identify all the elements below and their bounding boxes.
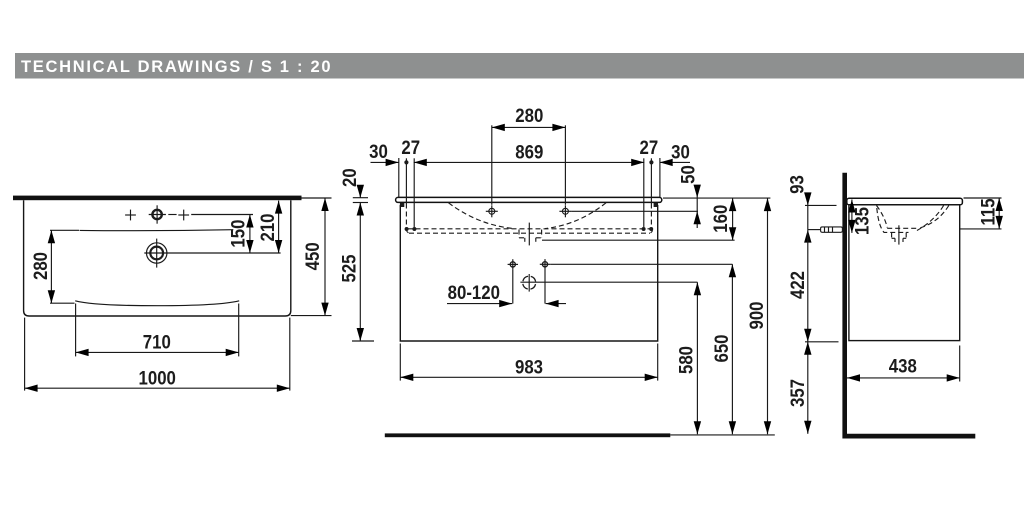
- svg-text:50: 50: [678, 165, 699, 184]
- svg-text:80-120: 80-120: [448, 282, 500, 303]
- svg-text:27: 27: [401, 137, 420, 158]
- svg-text:280: 280: [30, 252, 51, 280]
- svg-text:900: 900: [746, 301, 767, 329]
- svg-text:710: 710: [143, 332, 171, 353]
- svg-text:580: 580: [675, 346, 696, 374]
- svg-text:115: 115: [978, 198, 999, 225]
- svg-text:93: 93: [786, 175, 807, 194]
- svg-text:650: 650: [711, 334, 732, 362]
- svg-text:438: 438: [889, 355, 917, 376]
- svg-text:160: 160: [710, 205, 731, 233]
- svg-text:27: 27: [640, 137, 659, 158]
- svg-text:210: 210: [257, 213, 278, 241]
- svg-text:357: 357: [787, 379, 808, 407]
- svg-text:150: 150: [228, 220, 249, 248]
- svg-text:422: 422: [787, 271, 808, 299]
- svg-text:450: 450: [302, 242, 323, 270]
- svg-text:280: 280: [515, 105, 543, 126]
- svg-text:983: 983: [515, 357, 543, 378]
- svg-text:1000: 1000: [138, 367, 175, 388]
- svg-text:TECHNICAL DRAWINGS / S 1 : 20: TECHNICAL DRAWINGS / S 1 : 20: [21, 58, 332, 76]
- svg-text:869: 869: [515, 141, 543, 162]
- svg-text:135: 135: [851, 207, 872, 235]
- svg-text:30: 30: [369, 141, 388, 162]
- svg-text:525: 525: [339, 254, 360, 282]
- svg-text:20: 20: [339, 168, 360, 187]
- svg-text:30: 30: [671, 141, 690, 162]
